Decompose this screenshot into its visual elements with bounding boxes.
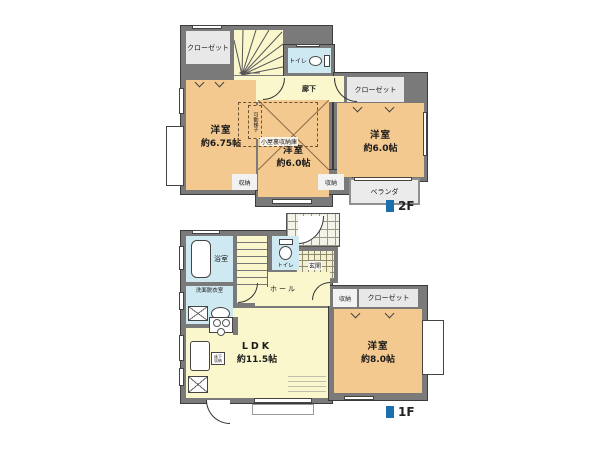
bedroom-2f-right: 洋室 約6.0帖 xyxy=(337,103,424,177)
window-2f-center-bottom xyxy=(272,199,312,204)
closet-1f-label: クローゼット xyxy=(368,293,410,303)
storage-1f: 収納 xyxy=(333,289,357,307)
kitchen-divider-stub xyxy=(233,317,238,335)
floor-tag-2f: 2F xyxy=(386,199,415,213)
closet-1f: クローゼット xyxy=(359,289,418,307)
terrace-step xyxy=(252,404,314,415)
toilet-1f-tank-icon xyxy=(279,239,293,245)
toilet-1f-bowl-icon xyxy=(279,246,292,260)
hall-1f-label: ホール xyxy=(270,284,297,294)
bathtub-icon xyxy=(191,240,211,278)
washroom-label: 洗面脱衣室 xyxy=(195,288,225,294)
toilet-2f-bowl-icon xyxy=(309,56,322,66)
bathroom-label: 浴室 xyxy=(214,254,228,264)
window-1f-left-bath xyxy=(179,246,184,270)
floor-tag-1f: 1F xyxy=(386,405,415,419)
bedroom-2f-left-size: 約6.75帖 xyxy=(201,136,241,149)
storage-2f-left-label: 収納 xyxy=(238,178,250,187)
window-1f-left-washroom xyxy=(179,292,184,310)
window-2f-veranda-door xyxy=(354,177,412,181)
kitchen-counter xyxy=(190,341,210,371)
bedroom-1f-name: 洋室 xyxy=(367,338,388,352)
attic-ladder-box: 可動梯子 xyxy=(248,105,262,139)
washing-machine-icon xyxy=(188,306,208,321)
underfloor-storage-box: 床下収納 xyxy=(211,352,225,365)
window-1f-left-ldk-1 xyxy=(179,335,184,361)
burner-icon-2 xyxy=(222,319,230,327)
toilet-2f-label: トイレ xyxy=(289,56,307,65)
floor-tag-1f-label: 1F xyxy=(398,405,415,419)
window-1f-bath-top xyxy=(192,230,220,234)
storage-2f-left: 収納 xyxy=(232,174,257,190)
stairs-2f-fan-icon xyxy=(234,30,283,75)
window-1f-left-ldk-2 xyxy=(179,368,184,386)
storage-2f-right-label: 収納 xyxy=(325,178,337,187)
floor-tag-1f-square-icon xyxy=(386,406,394,418)
bay-window-2f-left xyxy=(166,126,184,186)
stairs-1f xyxy=(237,235,268,287)
floor-tag-2f-label: 2F xyxy=(398,199,415,213)
ldk-step-lines xyxy=(288,374,326,392)
kitchen-sink-icon xyxy=(188,376,208,393)
bathroom: 浴室 xyxy=(186,236,233,282)
attic-ladder-label: 可動梯子 xyxy=(253,112,258,132)
bay-window-1f-right xyxy=(422,320,444,375)
underfloor-storage-label: 床下収納 xyxy=(213,355,223,363)
closet-2f-left: クローゼット xyxy=(186,31,230,64)
stairs-2f: DN xyxy=(234,30,283,75)
window-1f-bedroom-bottom xyxy=(344,396,374,400)
toilet-2f-tank-icon xyxy=(324,55,330,67)
entrance-label: 玄関 xyxy=(308,261,322,270)
storage-2f-right: 収納 xyxy=(318,174,344,190)
ldk-name: LDK xyxy=(242,341,272,352)
toilet-2f: トイレ xyxy=(288,48,331,73)
veranda-label: ベランダ xyxy=(371,187,399,197)
bedroom-1f: 洋室 約8.0帖 xyxy=(334,309,422,393)
floorplan-canvas: ベランダ クローゼット DN トイレ 廊下 洋室 約6.75帖 洋室 約6.0帖 xyxy=(0,0,600,449)
window-2f-right-wall xyxy=(423,112,427,156)
window-1f-ldk-bottom xyxy=(254,398,312,403)
bedroom-2f-left-name: 洋室 xyxy=(210,122,231,136)
bedroom-2f-right-name: 洋室 xyxy=(370,127,391,141)
ldk-size: 約11.5帖 xyxy=(237,352,277,365)
window-2f-top-wall xyxy=(192,25,222,29)
bedroom-2f-right-size: 約6.0帖 xyxy=(364,141,398,154)
window-2f-toilet-top xyxy=(296,44,320,47)
back-door-arc xyxy=(206,400,230,424)
stove-icon xyxy=(209,317,233,333)
toilet-1f-label: トイレ xyxy=(277,261,294,269)
storage-1f-label: 収納 xyxy=(339,294,351,303)
attic-storage-label: 小屋裏収納庫 xyxy=(260,137,298,146)
toilet-1f: トイレ xyxy=(272,236,299,270)
closet-2f-left-label: クローゼット xyxy=(187,43,229,53)
closet-2f-right-label: クローゼット xyxy=(355,85,397,95)
hallway-2f-label: 廊下 xyxy=(302,84,316,94)
burner-icon-1 xyxy=(213,319,221,327)
floor-tag-2f-square-icon xyxy=(386,200,394,212)
burner-icon-3 xyxy=(217,328,225,336)
window-2f-left-wall xyxy=(179,88,184,114)
wall-hall-ldk-stub xyxy=(233,303,255,308)
bedroom-1f-size: 約8.0帖 xyxy=(361,352,395,365)
